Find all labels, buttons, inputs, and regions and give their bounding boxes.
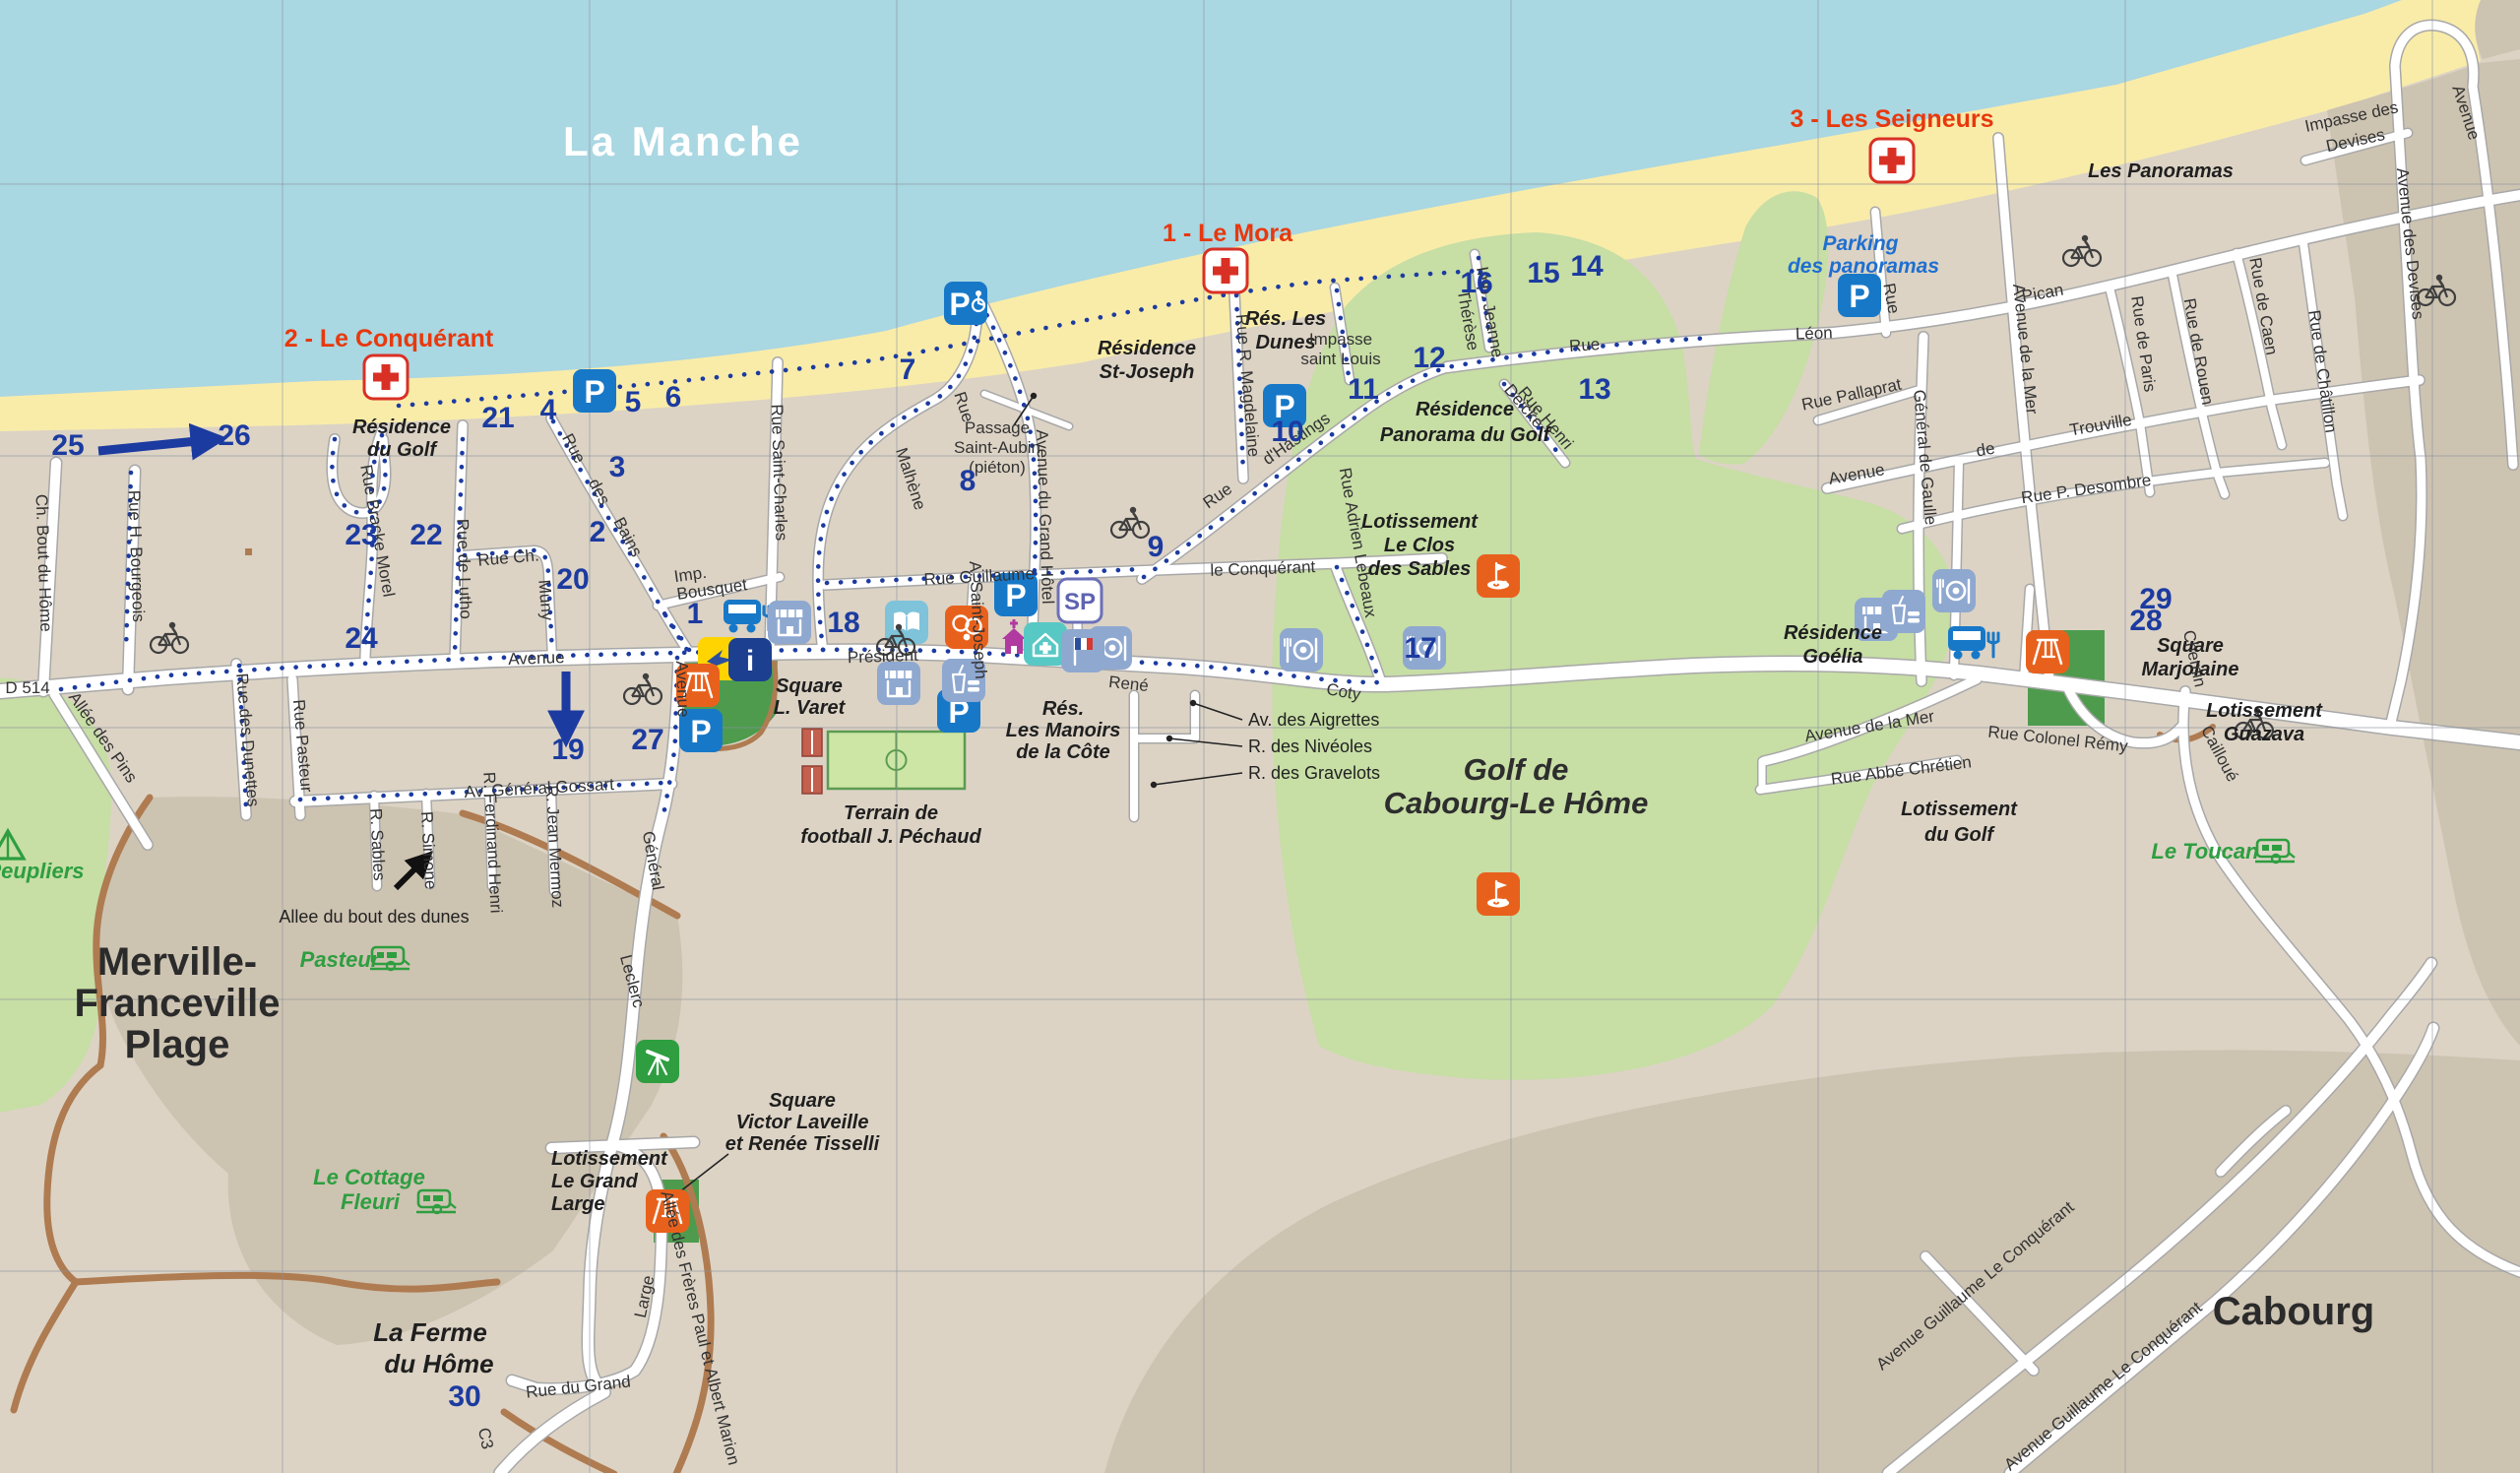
label-r-des-niv-oles: R. des Nivéoles	[1248, 736, 1372, 756]
label-r-des-gravelots: R. des Gravelots	[1248, 763, 1380, 783]
label-lotissement: Lotissement	[551, 1148, 668, 1170]
telescope-icon	[636, 1040, 679, 1083]
restaurant-icon	[1932, 569, 1976, 612]
label-impasse: Impasse	[1309, 330, 1372, 349]
svg-text:i: i	[746, 645, 754, 677]
label-r-sidence: Résidence	[352, 416, 451, 438]
marker-12: 12	[1413, 342, 1445, 374]
area-corner-dark	[2475, 0, 2520, 59]
marker-19: 19	[551, 734, 584, 766]
parking-icon: P	[1838, 274, 1881, 317]
label-parking: Parking	[1822, 232, 1898, 255]
svg-text:P: P	[1849, 279, 1869, 314]
label-square: Square	[776, 675, 843, 697]
label-lotissement: Lotissement	[1361, 511, 1479, 533]
label-l-varet: L. Varet	[774, 697, 847, 719]
town-map: PPPPPPPSPiLa MancheMerville-FrancevilleP…	[0, 0, 2520, 1473]
label-avenue: Avenue	[508, 648, 565, 669]
label-plage: Plage	[125, 1023, 230, 1066]
label-st-joseph: St-Joseph	[1100, 361, 1195, 383]
marker-13: 13	[1578, 373, 1610, 406]
label-pi-ton: (piéton)	[969, 458, 1026, 477]
label-guazava: Guazava	[2224, 724, 2304, 745]
brown-marker	[245, 548, 252, 555]
label-merville: Merville-	[97, 940, 257, 984]
label-lotissement: Lotissement	[2206, 700, 2323, 722]
label-le-clos: Le Clos	[1384, 535, 1455, 556]
label-la-manche: La Manche	[563, 118, 803, 164]
red-cross-icon	[1204, 249, 1247, 292]
red-cross-icon	[1870, 139, 1914, 182]
shop-icon	[877, 662, 920, 705]
marker-23: 23	[345, 519, 377, 551]
label-r-sables: R. Sables	[366, 807, 389, 881]
label-r-sidence: Résidence	[1098, 338, 1196, 359]
parking-icon: P	[573, 369, 616, 413]
label-franceville: Franceville	[74, 982, 280, 1025]
golf-icon	[1477, 554, 1520, 598]
marker-29: 29	[2139, 583, 2172, 615]
marker-21: 21	[481, 402, 514, 434]
label-large: Large	[551, 1193, 604, 1215]
marker-9: 9	[1148, 531, 1165, 563]
label-cabourg: Cabourg	[2213, 1290, 2374, 1333]
marker-24: 24	[345, 622, 378, 655]
label-des-panoramas: des panoramas	[1788, 255, 1939, 278]
label-golf-de: Golf de	[1464, 752, 1569, 787]
label-r-sidence: Résidence	[1416, 399, 1514, 420]
marker-15: 15	[1527, 257, 1559, 289]
label-lotissement: Lotissement	[1901, 799, 2018, 820]
label-de: de	[1975, 439, 1996, 461]
label-go-lia: Goélia	[1802, 646, 1862, 668]
label-pr-sident: Président	[848, 646, 919, 668]
label-panorama-du-golf: Panorama du Golf	[1380, 424, 1552, 446]
marker-16: 16	[1460, 267, 1492, 299]
svg-text:P: P	[584, 374, 604, 410]
terrain-de-football	[802, 729, 965, 794]
label-du-golf: du Golf	[367, 439, 438, 461]
label-pasteur: Pasteur	[300, 947, 381, 972]
label-la-ferme: La Ferme	[373, 1317, 487, 1347]
marker-5: 5	[625, 386, 642, 418]
label-d-514: D 514	[5, 678, 49, 697]
label-et-ren-e-tisselli: et Renée Tisselli	[725, 1133, 880, 1155]
svg-text:SP: SP	[1064, 589, 1096, 615]
label-le-toucan: Le Toucan	[2151, 839, 2258, 864]
label-des-sables: des Sables	[1368, 558, 1472, 580]
marker-26: 26	[218, 419, 250, 452]
label-l-on: Léon	[1795, 323, 1833, 343]
parking-handicap-icon: P	[944, 282, 987, 325]
marker-20: 20	[556, 563, 589, 596]
label-terrain-de: Terrain de	[844, 802, 938, 824]
marker-4: 4	[540, 394, 557, 426]
marker-25: 25	[51, 429, 84, 462]
marker-27: 27	[631, 724, 663, 756]
svg-text:P: P	[949, 287, 970, 322]
svg-text:P: P	[690, 714, 711, 749]
flag-icon	[1061, 629, 1104, 672]
label-1-le-mora: 1 - Le Mora	[1163, 220, 1293, 247]
label-saint-louis: saint Louis	[1300, 350, 1380, 368]
shop-icon	[768, 601, 811, 644]
label-les-peupliers: Les Peupliers	[0, 859, 85, 883]
label-r-s: Rés.	[1042, 698, 1084, 720]
marker-8: 8	[960, 465, 976, 497]
label-passage: Passage	[965, 418, 1030, 437]
label-square: Square	[769, 1090, 836, 1112]
label-du-h-me: du Hôme	[384, 1349, 493, 1378]
label-rue-de-lutho: Rue de Lutho	[453, 518, 475, 619]
marker-11: 11	[1348, 373, 1379, 406]
label-le-conqu-rant: le Conquérant	[1210, 557, 1316, 580]
label-le-cottage: Le Cottage	[313, 1165, 425, 1189]
label-cabourg-le-h-me: Cabourg-Le Hôme	[1384, 786, 1649, 820]
red-cross-icon	[364, 355, 408, 399]
marker-22: 22	[409, 519, 442, 551]
label-football-j-p-chaud: football J. Péchaud	[800, 826, 981, 848]
label-fleuri: Fleuri	[341, 1189, 401, 1214]
marker-1: 1	[687, 598, 704, 630]
label-2-le-conqu-rant: 2 - Le Conquérant	[284, 325, 494, 352]
info-icon: i	[728, 638, 772, 681]
golf-icon	[1477, 872, 1520, 916]
marker-17: 17	[1404, 632, 1436, 665]
label-r-s-les: Rés. Les	[1245, 308, 1326, 330]
label-muny: Muny	[535, 579, 557, 622]
health-icon	[1024, 622, 1067, 666]
label-les-panoramas: Les Panoramas	[2088, 160, 2234, 182]
label-avenue: Avenue	[672, 661, 693, 718]
sp-icon: SP	[1058, 579, 1102, 622]
label-le-grand: Le Grand	[551, 1171, 639, 1192]
drink-icon	[1882, 590, 1925, 633]
restaurant-icon	[1280, 628, 1323, 672]
label-av-des-aigrettes: Av. des Aigrettes	[1248, 710, 1379, 730]
marker-14: 14	[1570, 250, 1604, 283]
marker-2: 2	[590, 516, 606, 548]
label-victor-laveille: Victor Laveille	[736, 1112, 869, 1133]
label-du-golf: du Golf	[1924, 824, 1995, 846]
label-r-sidence: Résidence	[1784, 622, 1882, 644]
marker-18: 18	[827, 607, 859, 639]
label-allee-du-bout-des-dunes: Allee du bout des dunes	[279, 907, 469, 927]
label-3-les-seigneurs: 3 - Les Seigneurs	[1790, 105, 1993, 133]
label-saint-aubin: Saint-Aubin	[954, 438, 1040, 457]
label-les-manoirs: Les Manoirs	[1006, 720, 1121, 741]
marker-10: 10	[1271, 416, 1303, 448]
label-de-la-c-te: de la Côte	[1016, 741, 1110, 763]
marker-7: 7	[900, 353, 916, 386]
marker-3: 3	[609, 451, 626, 483]
marker-6: 6	[665, 381, 682, 414]
marker-30: 30	[448, 1380, 480, 1413]
swing-icon	[2026, 630, 2069, 673]
label-rue: Rue	[1568, 335, 1600, 355]
